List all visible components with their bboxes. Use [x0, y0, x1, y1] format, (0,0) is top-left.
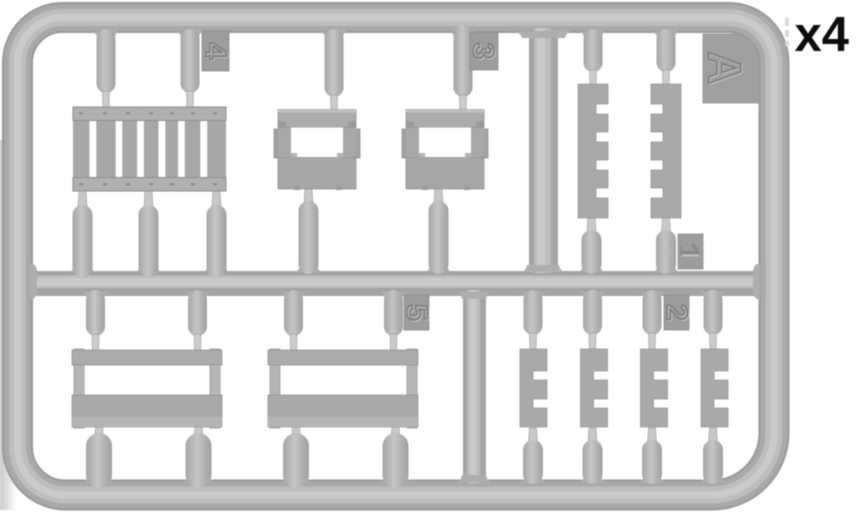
svg-text:3: 3 [467, 43, 500, 60]
svg-text:x4: x4 [795, 8, 850, 62]
svg-text:2: 2 [660, 304, 693, 321]
svg-text:4: 4 [199, 43, 232, 60]
svg-text:A: A [699, 51, 751, 84]
svg-text:5: 5 [400, 304, 433, 321]
